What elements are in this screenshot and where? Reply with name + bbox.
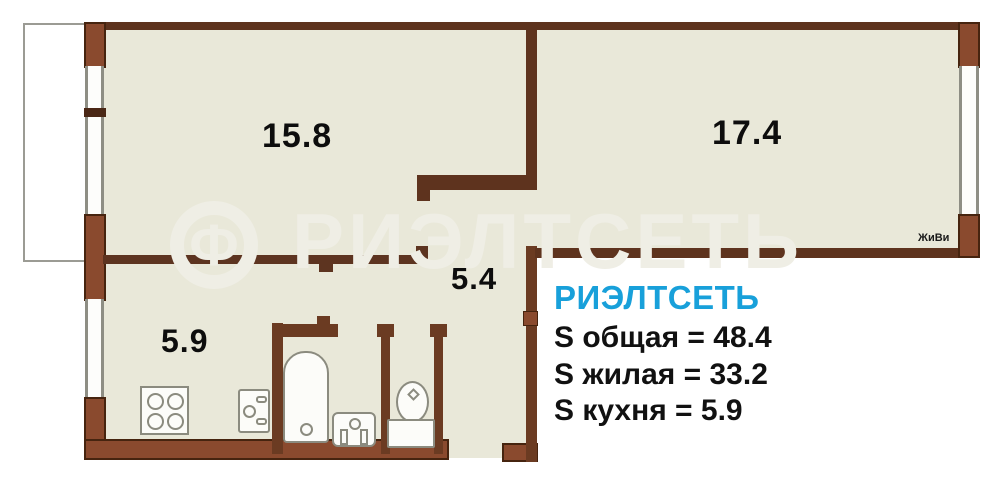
washbasin-leg: [340, 429, 348, 445]
toilet-tank: [387, 419, 435, 448]
room-label-living1: 15.8: [262, 117, 332, 156]
room-label-kitchen: 5.9: [161, 323, 208, 360]
wall-pier-top-right: [958, 22, 980, 68]
washbasin: [332, 412, 376, 447]
area-total-line: S общая = 48.4: [554, 321, 772, 355]
toilet-bowl: [396, 381, 429, 423]
washbasin-leg: [360, 429, 368, 445]
stove-burner: [147, 393, 164, 410]
bathtub: [283, 351, 329, 443]
stove: [140, 386, 189, 435]
room-label-living2: 17.4: [712, 114, 782, 153]
watermark-logo-glyph: Ф: [186, 208, 242, 284]
floor-plan: Ф РИЭЛТСЕТЬ 15.8 17.4 5.4 5.9 ЖиВи РИЭЛТ…: [0, 0, 1000, 485]
stove-burner: [147, 413, 164, 430]
window-right: [959, 66, 979, 216]
room-label-hallway: 5.4: [451, 261, 497, 297]
window-left-upper: [85, 66, 104, 216]
wall-pier-top-left: [84, 22, 106, 68]
wall-bathroom-left: [272, 323, 283, 454]
wall-bathroom-top: [272, 324, 338, 337]
wall-toilet-right-stem: [434, 335, 443, 454]
wall-hallway-top: [417, 175, 537, 190]
area-living-line: S жилая = 33.2: [554, 358, 768, 392]
stove-burner: [167, 413, 184, 430]
zhivi-badge: ЖиВи: [918, 232, 949, 244]
sink-basin: [243, 405, 256, 418]
bathtub-drain: [300, 423, 313, 436]
brand-title: РИЭЛТСЕТЬ: [554, 279, 759, 317]
door-jamb-bathroom: [317, 316, 330, 325]
area-kitchen-line: S кухня = 5.9: [554, 394, 743, 428]
wall-pier-right-bottom: [958, 214, 980, 258]
watermark-text: РИЭЛТСЕТЬ: [292, 206, 803, 278]
sink-faucet: [256, 418, 267, 425]
wall-between-rooms: [526, 22, 537, 190]
window-left-crossbar: [84, 108, 106, 117]
toilet-flush: [407, 388, 420, 401]
window-kitchen: [85, 299, 104, 399]
sink-faucet: [256, 396, 267, 403]
entry-door-stub: [523, 311, 538, 326]
stove-burner: [167, 393, 184, 410]
kitchen-sink: [238, 389, 270, 433]
